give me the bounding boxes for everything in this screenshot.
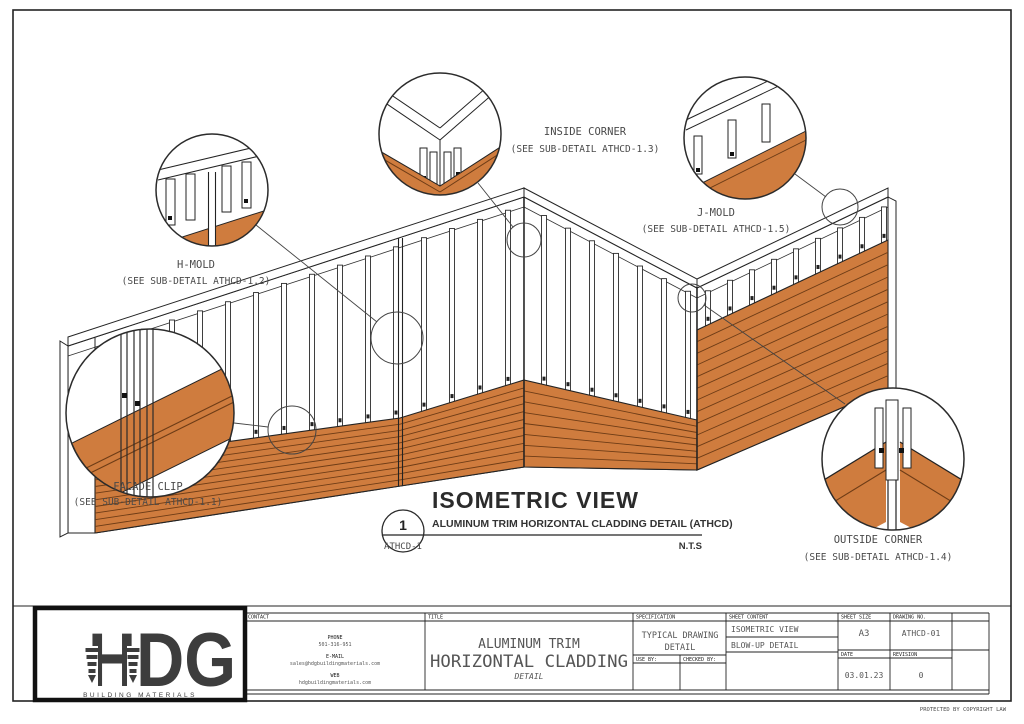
sheet-canvas: FACADE CLIP (SEE SUB-DETAIL ATHCD-1.1) H…: [0, 0, 1024, 724]
title-cell: ALUMINUM TRIM HORIZONTAL CLADDING DETAIL: [430, 637, 628, 681]
contact-cell: PHONE 501-316-951 E-MAIL sales@hdgbuildi…: [290, 635, 380, 686]
inside-corner-ref: (SEE SUB-DETAIL ATHCD-1.3): [511, 144, 660, 155]
logo-text: HDG: [88, 618, 236, 703]
specification-header: SPECIFICATION: [636, 615, 675, 621]
sheet-size-value: A3: [859, 629, 870, 639]
drawing-no-header: DRAWING NO.: [893, 615, 926, 621]
j-mold-label: J-MOLD: [697, 207, 735, 219]
logo-tagline: BUILDING MATERIALS: [83, 692, 197, 699]
email-value: sales@hdgbuildingmaterials.com: [290, 661, 380, 667]
view-title-block: ISOMETRIC VIEW ALUMINUM TRIM HORIZONTAL …: [382, 487, 733, 552]
inside-corner-label: INSIDE CORNER: [544, 126, 627, 138]
revision-value: 0: [919, 671, 924, 680]
sheet-size-header: SHEET SIZE: [841, 615, 871, 621]
date-value: 03.01.23: [845, 671, 884, 680]
sheet-content-row1: ISOMETRIC VIEW: [731, 625, 799, 634]
contact-header: CONTACT: [248, 615, 269, 621]
specification-value1: TYPICAL DRAWING: [642, 631, 719, 641]
email-label: E-MAIL: [326, 654, 344, 660]
sheet-content-header: SHEET CONTENT: [729, 615, 768, 621]
specification-cell: TYPICAL DRAWING DETAIL: [642, 631, 719, 653]
wall-right-end-edge: [888, 197, 896, 392]
title-block: CONTACT TITLE SPECIFICATION SHEET CONTEN…: [35, 608, 1007, 713]
title-header: TITLE: [428, 615, 443, 621]
h-mold-label: H-MOLD: [177, 259, 215, 271]
web-value: hdgbuildingmaterials.com: [299, 680, 371, 686]
phone-value: 501-316-951: [318, 642, 351, 648]
revision-header: REVISION: [893, 652, 917, 658]
facade-clip-label: FACADE CLIP: [113, 481, 183, 493]
view-subtitle: ALUMINUM TRIM HORIZONTAL CLADDING DETAIL…: [432, 518, 733, 530]
detail-circle-h-mold: [154, 134, 270, 248]
sheet-content-row2: BLOW-UP DETAIL: [731, 641, 799, 650]
doc-title-line3: DETAIL: [514, 672, 544, 681]
logo-box: HDG BUILDING MATERIALS: [35, 608, 245, 703]
view-scale: N.T.S: [679, 541, 702, 552]
outside-corner-label: OUTSIDE CORNER: [834, 534, 923, 546]
j-mold-ref: (SEE SUB-DETAIL ATHCD-1.5): [642, 224, 791, 235]
doc-title-line1: ALUMINUM TRIM: [478, 637, 580, 652]
facade-clip-ref: (SEE SUB-DETAIL ATHCD-1.1): [74, 497, 223, 508]
web-label: WEB: [330, 673, 339, 679]
view-title: ISOMETRIC VIEW: [432, 487, 639, 513]
detail-circle-inside-corner: [378, 73, 502, 198]
doc-title-line2: HORIZONTAL CLADDING: [430, 652, 628, 671]
drawing-no-value: ATHCD-01: [902, 629, 941, 638]
use-by-label: USE BY:: [636, 657, 657, 663]
phone-label: PHONE: [327, 635, 342, 641]
drawing-sheet: FACADE CLIP (SEE SUB-DETAIL ATHCD-1.1) H…: [0, 0, 1024, 724]
date-header: DATE: [841, 652, 853, 658]
specification-value2: DETAIL: [665, 643, 696, 653]
detail-circle-j-mold: [684, 62, 808, 202]
outside-corner-ref: (SEE SUB-DETAIL ATHCD-1.4): [804, 552, 953, 563]
view-callout-ref: ATHCD-1: [384, 542, 422, 552]
checked-by-label: CHECKED BY:: [683, 657, 716, 663]
copyright-note: PROTECTED BY COPYRIGHT LAW: [920, 707, 1007, 713]
view-callout-number: 1: [399, 517, 407, 533]
h-mold-ref: (SEE SUB-DETAIL ATHCD-1.2): [122, 276, 271, 287]
wall-left-end-edge: [60, 341, 68, 537]
